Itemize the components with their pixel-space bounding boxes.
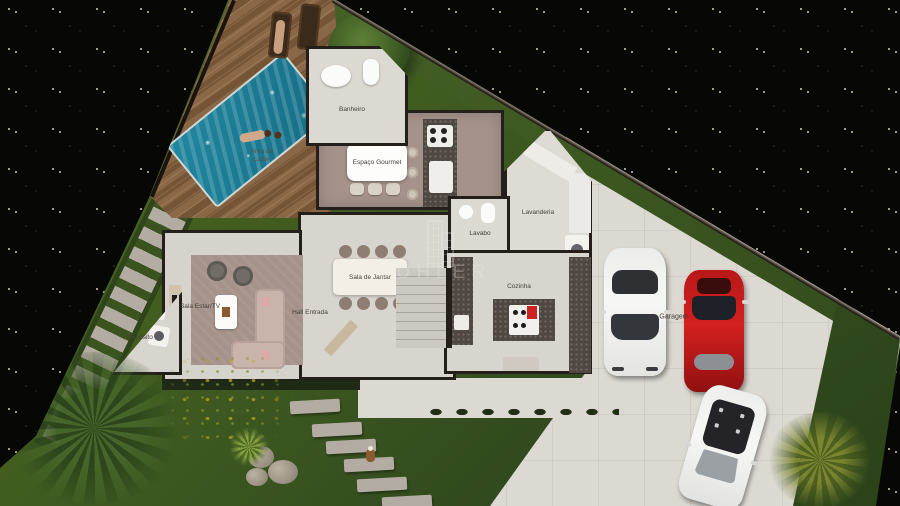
stepping-stone [357,477,408,493]
stepping-stone [312,422,363,438]
palm-tree [768,412,872,506]
red-car [684,270,744,392]
bar-stool [407,189,418,200]
coffee-table [215,295,237,329]
side-mirror [679,300,686,304]
sofa-pillow [261,297,270,306]
garden-rock [268,460,298,484]
headlight [646,367,658,371]
kitchen-counter [569,257,591,373]
toilet-icon [481,203,495,223]
garden-rock [246,468,268,486]
car-windshield [611,314,659,340]
dining-chair [393,245,406,258]
label-deposito: Depósito [127,334,153,342]
gourmet-chair [368,183,382,195]
label-garagem: Garagem [659,314,688,323]
dining-chair [339,245,352,258]
kitchen-island [493,299,555,341]
label-espaco-gourmet: Espaço Gourmet [353,159,402,166]
toilet-icon [363,59,379,85]
kitchen-bench [503,357,539,371]
side-mirror [599,310,606,314]
palm-plant [5,352,183,504]
swimmer-head [273,130,283,140]
dining-chair [375,245,388,258]
dining-chair [357,297,370,310]
kitchen-sink [454,315,469,330]
car-sunroof [697,278,731,294]
side-mirror [742,300,749,304]
car-windshield [692,296,736,320]
car-rear-window [694,354,734,370]
car-roof [701,398,757,456]
flower-patch [150,352,305,447]
side-mirror [750,460,758,466]
agave-plant [228,428,270,466]
dining-chair [357,245,370,258]
property-site: Espaço Gourmet Sala de Jantar [0,0,900,506]
stove-icon [427,125,453,147]
gourmet-table: Espaço Gourmet [347,143,407,181]
stepping-stone [382,495,433,506]
dining-chair [339,297,352,310]
bathroom-sink [321,65,351,87]
bar-stool [407,147,418,158]
headlight [612,367,624,371]
label-banheiro: Banheiro [339,106,365,114]
swimmer-figure [239,129,266,143]
car-rear-window [612,270,658,294]
lavabo-sink [459,205,473,219]
shrub-row [424,404,619,420]
label-cozinha: Cozinha [507,283,531,291]
room-banheiro [306,46,408,146]
label-lavabo: Lavabo [469,230,490,238]
floor-plan-render: Espaço Gourmet Sala de Jantar [0,0,900,506]
gourmet-chair [350,183,364,195]
armchair [207,261,227,281]
gourmet-sink [429,161,453,193]
label-lavanderia: Lavanderia [522,209,554,217]
bar-stool [407,167,418,178]
hall-console [324,320,358,356]
label-area-lazer: Área de Lazer [245,148,279,164]
gourmet-chair [386,183,400,195]
label-hall-entrada: Hall Entrada [290,309,330,317]
dining-chair [375,297,388,310]
label-sala-estar: Sala Estar/TV [180,303,220,311]
red-cooktop [527,306,537,319]
dog-figure [366,449,375,462]
laundry-counter [569,173,591,233]
white-car [604,248,666,376]
armchair [233,266,253,286]
watermark-brand-text: BÜHLER [352,262,517,284]
